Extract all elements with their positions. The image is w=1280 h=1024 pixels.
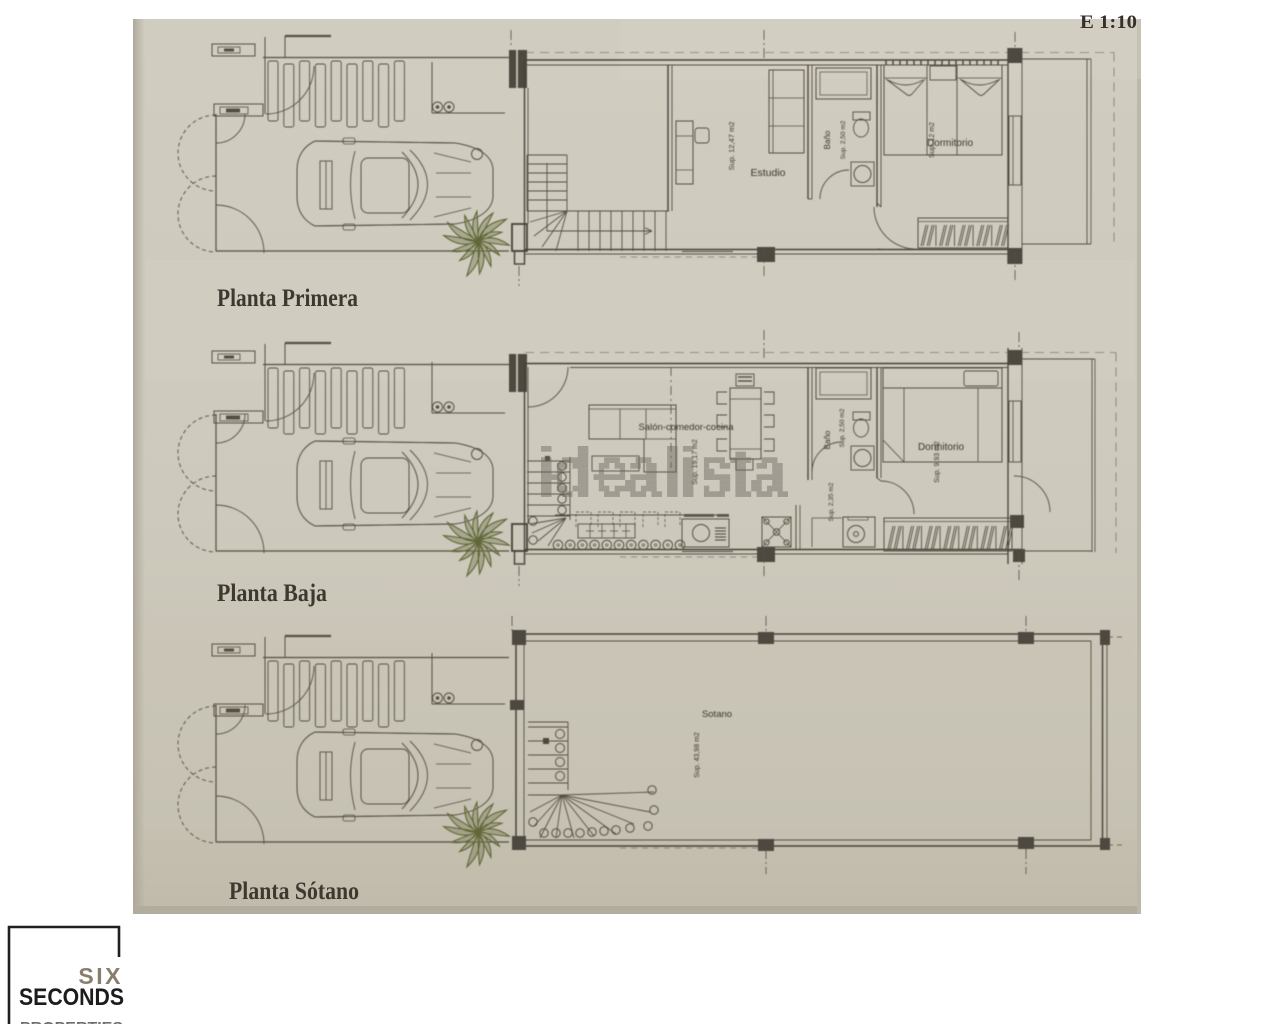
svg-text:Sup. 12 m2: Sup. 12 m2 bbox=[929, 122, 936, 158]
svg-text:Planta Baja: Planta Baja bbox=[217, 580, 327, 607]
svg-text:Sup. 2,50 m2: Sup. 2,50 m2 bbox=[840, 120, 847, 159]
svg-text:Dormitorio: Dormitorio bbox=[918, 442, 965, 453]
svg-text:Sup. 12,47 m2: Sup. 12,47 m2 bbox=[727, 122, 736, 171]
svg-text:Planta Primera: Planta Primera bbox=[217, 285, 358, 312]
svg-text:Sup. 43,98 m2: Sup. 43,98 m2 bbox=[694, 732, 701, 778]
svg-text:Salón-comedor-cocina: Salón-comedor-cocina bbox=[638, 422, 734, 433]
svg-text:Baño: Baño bbox=[823, 430, 832, 449]
svg-text:Sup. 2,50 m2: Sup. 2,50 m2 bbox=[839, 408, 846, 447]
svg-text:Baño: Baño bbox=[823, 130, 832, 149]
svg-text:Sup. 2,35 m2: Sup. 2,35 m2 bbox=[828, 482, 835, 521]
svg-text:Planta Sótano: Planta Sótano bbox=[229, 878, 359, 905]
svg-text:Sup. 9,93 m2: Sup. 9,93 m2 bbox=[934, 441, 941, 483]
svg-text:SECONDS: SECONDS bbox=[19, 984, 124, 1011]
svg-text:Sotano: Sotano bbox=[702, 709, 732, 720]
svg-text:E 1:10: E 1:10 bbox=[1080, 12, 1137, 33]
svg-text:PROPERTIES: PROPERTIES bbox=[20, 1019, 123, 1024]
svg-text:Estudio: Estudio bbox=[750, 167, 785, 179]
